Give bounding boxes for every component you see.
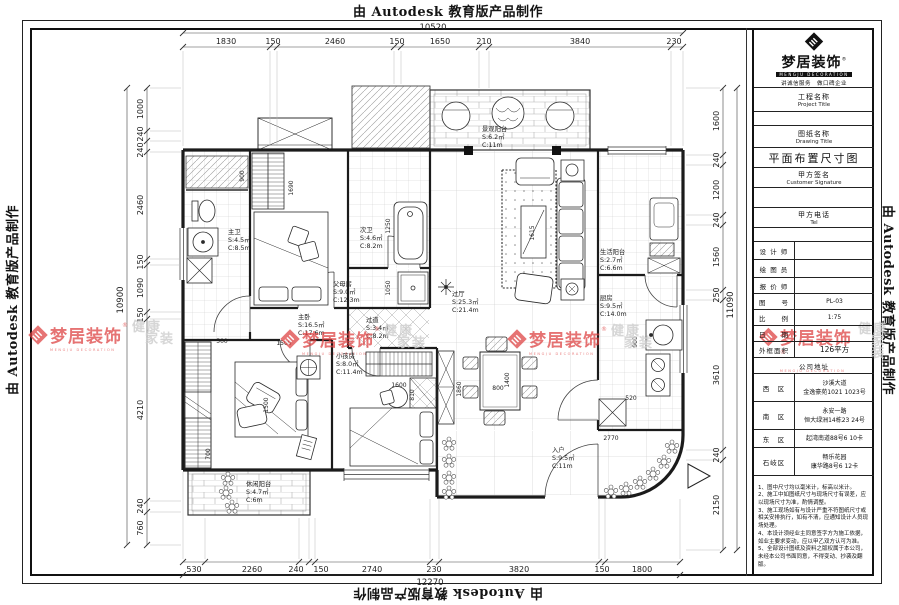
svg-text:S:6.2㎡: S:6.2㎡	[482, 132, 505, 141]
brand-watermark: 梦居装饰® MENGJU DECORATION 健康家装	[26, 322, 175, 352]
svg-text:810: 810	[409, 389, 416, 401]
svg-text:1860: 1860	[456, 381, 463, 396]
svg-text:2150: 2150	[712, 495, 721, 515]
svg-text:1050: 1050	[385, 280, 392, 295]
dimension-text-bottom: 12270 530 2260 240 150 2740 230 3820 150…	[186, 565, 652, 588]
svg-text:2460: 2460	[136, 195, 145, 215]
svg-text:S:25.3㎡: S:25.3㎡	[452, 297, 479, 306]
svg-text:S:9.5㎡: S:9.5㎡	[552, 453, 575, 462]
address-row-east: 东 区 起湾南道88号6 10卡	[754, 430, 874, 448]
customer-tel-value	[754, 228, 874, 242]
parents-room-furniture	[252, 153, 328, 305]
svg-text:S:4.6㎡: S:4.6㎡	[360, 233, 383, 242]
svg-text:150: 150	[389, 37, 404, 46]
svg-text:3820: 3820	[509, 565, 529, 574]
living-room-furniture	[502, 158, 585, 304]
svg-text:C:21.4m: C:21.4m	[452, 307, 479, 314]
svg-text:C:6m: C:6m	[246, 497, 263, 504]
drawing-title: 平面布置尺寸图	[754, 148, 874, 168]
project-title-label: 工程名称 Project Title	[754, 88, 874, 112]
title-block: 梦居装饰® MENGJU DECORATION 讲诚信服务 做口碑企业 工程名称…	[752, 28, 874, 576]
frame-area-row: 外框面积 126平方	[754, 342, 874, 358]
svg-text:240: 240	[136, 498, 145, 513]
svg-text:过道: 过道	[366, 315, 379, 324]
scale-row: 比 例 1:75	[754, 310, 874, 326]
svg-text:主卫: 主卫	[228, 227, 241, 236]
svg-text:过厅: 过厅	[452, 289, 465, 298]
svg-text:10520: 10520	[419, 23, 446, 33]
svg-text:C:11m: C:11m	[482, 142, 503, 149]
dimension-text-top: 10520 1830 150 2460 150 1650 210 3840 23…	[216, 23, 682, 46]
company-address-header: 公司地址	[754, 358, 874, 374]
general-notes: 1、图中尺寸均以毫米计，标高以米计。 2、施工中如图纸尺寸与现场尺寸有误差，应以…	[754, 476, 874, 578]
svg-text:S:2.7㎡: S:2.7㎡	[600, 255, 623, 264]
svg-text:1500: 1500	[263, 397, 270, 412]
svg-text:3610: 3610	[712, 365, 721, 385]
svg-text:1000: 1000	[136, 99, 145, 119]
svg-text:12270: 12270	[416, 578, 443, 588]
company-logo-icon	[801, 31, 827, 52]
company-logo: 梦居装饰® MENGJU DECORATION 讲诚信服务 做口碑企业	[754, 28, 874, 88]
project-title-value	[754, 112, 874, 126]
svg-text:次卫: 次卫	[360, 225, 373, 234]
svg-text:C:11.4m: C:11.4m	[336, 369, 363, 376]
customer-signature-label: 甲方签名 Customer Signature	[754, 168, 874, 188]
svg-text:1200: 1200	[712, 180, 721, 200]
svg-text:1650: 1650	[430, 37, 450, 46]
svg-text:520: 520	[625, 395, 637, 402]
kids-room-furniture	[350, 352, 436, 466]
svg-text:生活阳台: 生活阳台	[600, 247, 625, 256]
svg-text:C:8.2m: C:8.2m	[360, 243, 383, 250]
svg-text:800: 800	[492, 385, 504, 392]
svg-text:1250: 1250	[385, 218, 392, 233]
drawing-title-label: 图纸名称 Drawing Title	[754, 126, 874, 148]
svg-text:1560: 1560	[712, 247, 721, 267]
section-marker-icon	[688, 464, 710, 488]
svg-text:230: 230	[666, 37, 681, 46]
svg-text:2740: 2740	[362, 565, 382, 574]
svg-text:主卧: 主卧	[298, 312, 311, 321]
svg-text:C:12.3m: C:12.3m	[333, 297, 360, 304]
svg-text:1830: 1830	[216, 37, 236, 46]
dimension-text-left: 10900 1000 240 240 2460 150 1090 150 421…	[116, 99, 145, 536]
brand-watermark: 梦居装饰® MENGJU DECORATION 健康家装	[278, 326, 427, 356]
svg-text:入户: 入户	[552, 445, 565, 454]
svg-text:景观阳台: 景观阳台	[482, 124, 507, 133]
svg-text:父母房: 父母房	[333, 279, 352, 288]
drawing-sheet: 由 Autodesk 教育版产品制作 由 Autodesk 教育版产品制作 由 …	[0, 0, 899, 605]
customer-signature-value	[754, 188, 874, 208]
svg-text:C:8.5m: C:8.5m	[228, 245, 251, 252]
svg-text:230: 230	[426, 565, 441, 574]
svg-text:210: 210	[476, 37, 491, 46]
draftsman-row: 绘 图 员	[754, 260, 874, 278]
svg-text:1600: 1600	[712, 111, 721, 131]
brand-watermark-logo-icon	[278, 326, 302, 352]
svg-text:2460: 2460	[325, 37, 345, 46]
svg-text:厨房: 厨房	[600, 293, 613, 302]
svg-text:休闲阳台: 休闲阳台	[246, 479, 271, 488]
svg-text:1800: 1800	[632, 565, 652, 574]
dimension-text-right: 11090 1600 240 1200 240 1560 250 3610 24…	[712, 111, 736, 515]
svg-text:150: 150	[594, 565, 609, 574]
svg-text:240: 240	[136, 142, 145, 157]
second-bath-fixtures	[394, 202, 428, 304]
svg-text:4210: 4210	[136, 400, 145, 420]
customer-tel-label: 甲方电话 Tel	[754, 208, 874, 228]
svg-text:S:4.5㎡: S:4.5㎡	[228, 235, 251, 244]
svg-text:240: 240	[712, 447, 721, 462]
brand-watermark: 梦居装饰® MENGJU DECORATION 健康家装	[505, 326, 654, 356]
svg-text:S:8.0㎡: S:8.0㎡	[336, 359, 359, 368]
drawing-no-row: 图 号 PL-03	[754, 294, 874, 310]
svg-text:1600: 1600	[391, 382, 406, 389]
svg-text:530: 530	[186, 565, 201, 574]
address-row-shiqi: 石岐区 畅乐花园康华路8号6 12卡	[754, 448, 874, 476]
svg-text:700: 700	[205, 448, 212, 460]
svg-text:C:11m: C:11m	[552, 463, 573, 470]
date-row: 日 期	[754, 326, 874, 342]
estimator-row: 报 价 师	[754, 278, 874, 294]
address-row-west: 西 区 沙溪大道金逸豪苑1021 1023号	[754, 374, 874, 402]
svg-text:150: 150	[136, 254, 145, 269]
svg-text:240: 240	[712, 212, 721, 227]
svg-text:900: 900	[239, 170, 246, 182]
address-row-south: 南 区 永安一路恒大绿洲14栋23 24号	[754, 402, 874, 430]
svg-text:11090: 11090	[726, 291, 736, 318]
svg-text:10900: 10900	[116, 286, 126, 313]
svg-text:2260: 2260	[242, 565, 262, 574]
svg-text:C:14.0m: C:14.0m	[600, 311, 627, 318]
svg-text:2770: 2770	[603, 435, 618, 442]
svg-text:S:4.7㎡: S:4.7㎡	[246, 487, 269, 496]
svg-text:150: 150	[313, 565, 328, 574]
svg-text:250: 250	[712, 287, 721, 302]
svg-text:1690: 1690	[288, 180, 295, 195]
svg-text:1615: 1615	[529, 225, 536, 240]
svg-text:3840: 3840	[570, 37, 590, 46]
svg-text:500: 500	[216, 338, 228, 345]
svg-text:240: 240	[712, 152, 721, 167]
svg-text:760: 760	[136, 520, 145, 535]
svg-text:1400: 1400	[504, 372, 511, 387]
brand-watermark-logo-icon	[505, 326, 529, 352]
room-label-service-balcony: 生活阳台 S:2.7㎡ C:6.6m	[600, 247, 625, 272]
svg-text:240: 240	[288, 565, 303, 574]
svg-text:S:9.5㎡: S:9.5㎡	[600, 301, 623, 310]
designer-row: 设 计 师	[754, 242, 874, 260]
svg-text:C:6.6m: C:6.6m	[600, 265, 623, 272]
svg-text:240: 240	[136, 126, 145, 141]
svg-text:150: 150	[265, 37, 280, 46]
svg-text:S:9.0㎡: S:9.0㎡	[333, 287, 356, 296]
brand-watermark-logo-icon	[26, 322, 50, 348]
svg-text:1090: 1090	[136, 278, 145, 298]
